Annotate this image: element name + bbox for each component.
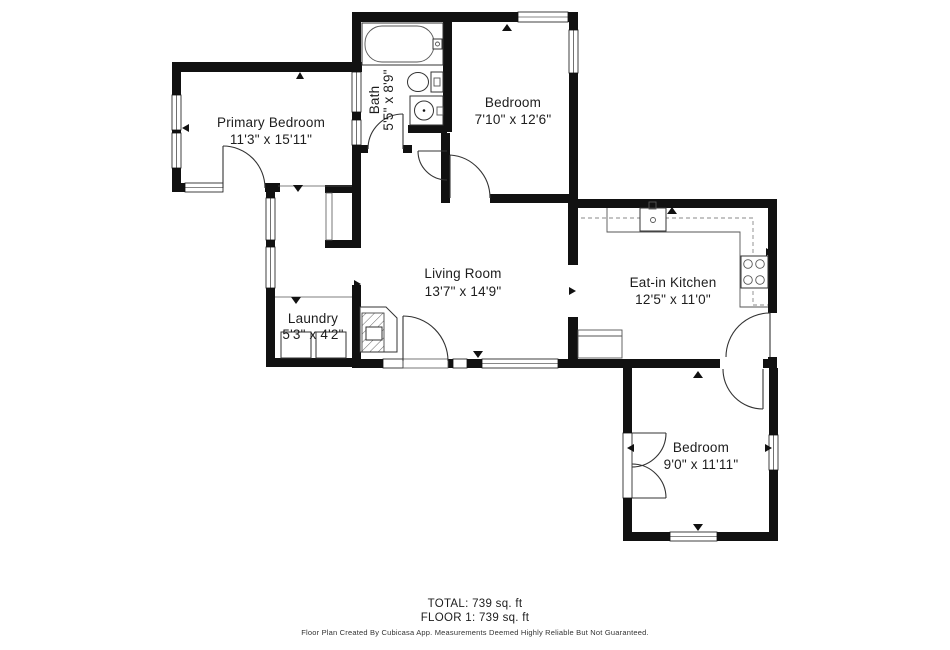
fireplace-fixture bbox=[360, 307, 397, 352]
room-dims-eat-in-kitchen: 12'5" x 11'0" bbox=[635, 292, 711, 307]
toilet-fixture bbox=[408, 72, 444, 92]
room-dims-living-room: 13'7" x 14'9" bbox=[425, 284, 502, 299]
footer: TOTAL: 739 sq. ft FLOOR 1: 739 sq. ft Fl… bbox=[301, 598, 649, 637]
disclaimer-text: Floor Plan Created By Cubicasa App. Meas… bbox=[301, 628, 649, 637]
kitchen-side-door bbox=[726, 313, 770, 357]
bedroom-bottom-door bbox=[723, 369, 763, 409]
room-dims-bath: 5'5" x 8'9" bbox=[381, 69, 396, 130]
room-labels: Primary Bedroom 11'3" x 15'11" Bath 5'5"… bbox=[217, 69, 738, 472]
stove-fixture bbox=[741, 256, 768, 288]
floor-plan-canvas: Primary Bedroom 11'3" x 15'11" Bath 5'5"… bbox=[0, 0, 950, 650]
room-dims-bedroom-top: 7'10" x 12'6" bbox=[475, 112, 552, 127]
bathtub-fixture bbox=[362, 23, 443, 65]
total-area-text: TOTAL: 739 sq. ft bbox=[428, 598, 523, 610]
room-dims-primary-bedroom: 11'3" x 15'11" bbox=[230, 132, 312, 147]
living-room-entry-door bbox=[403, 316, 448, 361]
room-label-bath: Bath bbox=[367, 86, 382, 115]
room-dims-laundry: 5'3" x 4'2" bbox=[282, 327, 343, 342]
floor1-area-text: FLOOR 1: 739 sq. ft bbox=[421, 612, 530, 624]
room-label-laundry: Laundry bbox=[288, 311, 338, 326]
bedroom-top-door bbox=[450, 155, 490, 198]
bedroom-bottom-double-doors bbox=[632, 433, 666, 498]
primary-bedroom-door bbox=[223, 146, 265, 188]
room-label-eat-in-kitchen: Eat-in Kitchen bbox=[630, 275, 717, 290]
room-dims-bedroom-bottom: 9'0" x 11'11" bbox=[664, 457, 739, 472]
bath-sink-fixture bbox=[410, 96, 443, 125]
room-label-primary-bedroom: Primary Bedroom bbox=[217, 115, 325, 130]
room-label-living-room: Living Room bbox=[424, 266, 501, 281]
room-label-bedroom-top: Bedroom bbox=[485, 95, 541, 110]
room-label-bedroom-bottom: Bedroom bbox=[673, 440, 729, 455]
floor-plan-page: Primary Bedroom 11'3" x 15'11" Bath 5'5"… bbox=[0, 0, 950, 650]
